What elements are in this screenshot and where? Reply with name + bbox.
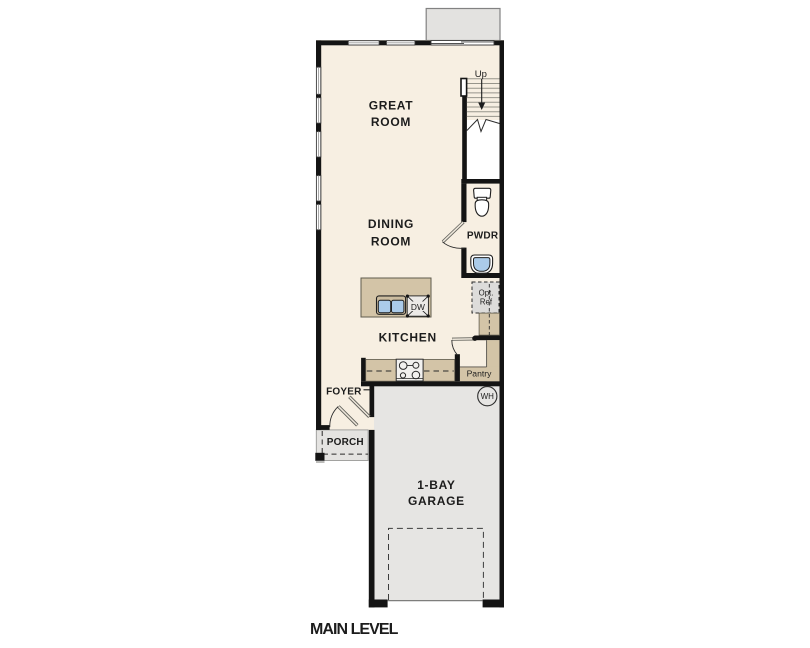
svg-text:KITCHEN: KITCHEN <box>379 330 437 344</box>
svg-text:Pantry: Pantry <box>467 369 493 379</box>
svg-text:FOYER: FOYER <box>326 386 362 397</box>
svg-text:ROOM: ROOM <box>371 235 411 249</box>
svg-text:GREAT: GREAT <box>369 98 414 112</box>
svg-text:Ref: Ref <box>480 297 493 306</box>
svg-text:WH: WH <box>481 392 495 401</box>
svg-text:1-BAY: 1-BAY <box>417 478 455 492</box>
svg-text:Opt.: Opt. <box>479 288 494 297</box>
svg-text:PORCH: PORCH <box>327 437 364 448</box>
svg-text:DINING: DINING <box>368 217 414 231</box>
svg-text:Up: Up <box>475 69 487 80</box>
svg-text:MAIN LEVEL: MAIN LEVEL <box>310 621 399 638</box>
svg-text:GARAGE: GARAGE <box>408 494 465 508</box>
svg-text:ROOM: ROOM <box>371 115 411 129</box>
svg-text:DW: DW <box>411 302 425 312</box>
svg-text:PWDR: PWDR <box>467 230 499 241</box>
